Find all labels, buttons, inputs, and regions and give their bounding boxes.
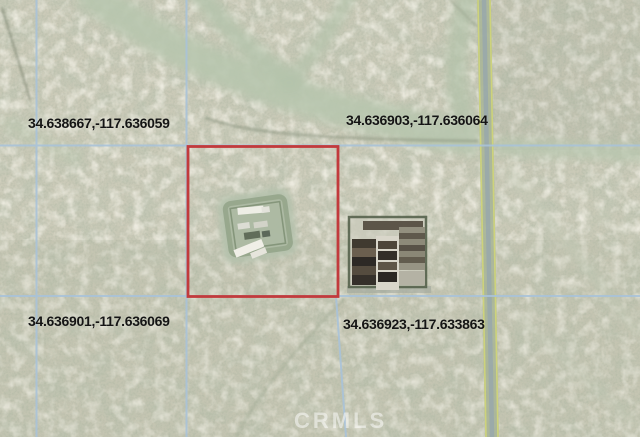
coordinate-label-ne: 34.636903,-117.636064: [346, 112, 488, 128]
farm-compound: [347, 217, 431, 293]
coordinate-label-se: 34.636923,-117.633863: [343, 316, 485, 332]
farm-right-rows: [399, 227, 425, 270]
aerial-imagery: [0, 0, 640, 437]
satellite-map[interactable]: 34.638667,-117.636059 34.636903,-117.636…: [0, 0, 640, 437]
coordinate-label-nw: 34.638667,-117.636059: [28, 115, 170, 131]
homestead-compound: [215, 187, 299, 265]
crmls-watermark: CRMLS: [294, 408, 387, 434]
coordinate-label-sw: 34.636901,-117.636069: [28, 313, 170, 329]
